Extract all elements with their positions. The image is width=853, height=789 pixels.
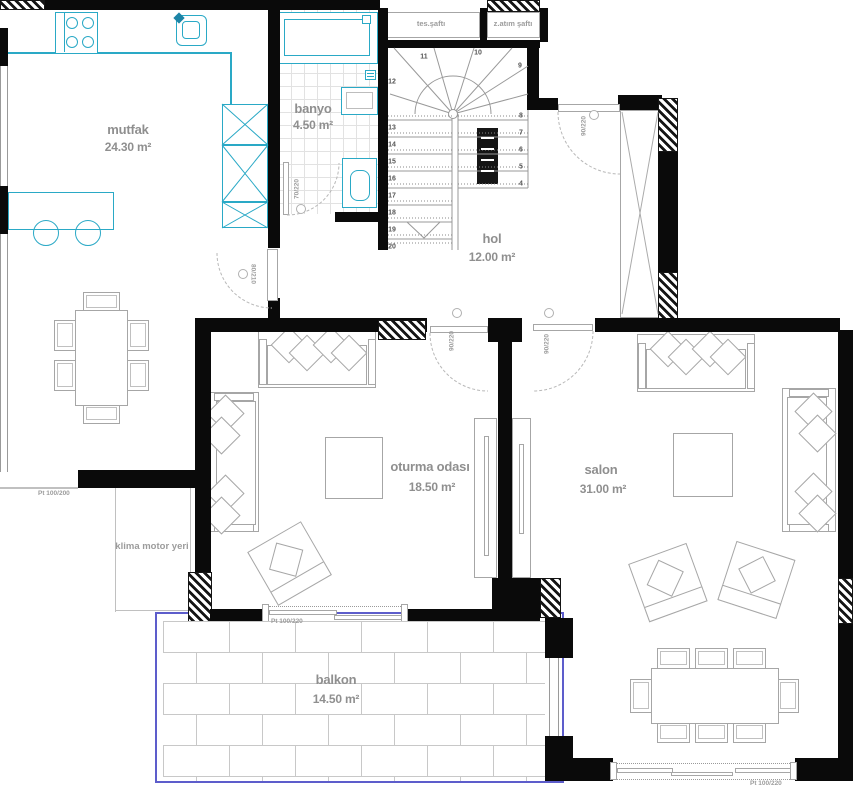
step-number: 12	[388, 79, 396, 86]
floor-plan: mutfak 24.30 m² banyo 4.50 m² hol 12.00 …	[0, 0, 853, 789]
kitchen-door-arc	[217, 253, 272, 308]
room-area-balkon: 14.50 m²	[313, 692, 359, 706]
step-number: 13	[388, 125, 396, 132]
step-number: 4	[519, 181, 523, 188]
door-dim-oturma: 90/220	[449, 331, 456, 351]
klima-label: klima motor yeri	[115, 541, 188, 552]
room-area-salon: 31.00 m²	[580, 482, 626, 496]
door-dim-salon: 90/220	[544, 334, 551, 354]
entry-door-arc	[558, 112, 620, 174]
door-tag-salon-bottom: Pt 100/220	[750, 780, 782, 787]
step-number: 17	[388, 193, 396, 200]
room-area-mutfak: 24.30 m²	[105, 140, 151, 154]
step-number: 19	[388, 227, 396, 234]
door-tag-circle	[452, 308, 462, 318]
step-number: 8	[519, 113, 523, 120]
shaft-label-zatim: z.atım şaftı	[494, 19, 533, 28]
door-dim-banyo: 70/220	[294, 179, 301, 199]
step-number: 15	[388, 159, 396, 166]
room-area-banyo: 4.50 m²	[293, 118, 333, 132]
door-tag-circle	[589, 110, 599, 120]
room-area-hol: 12.00 m²	[469, 250, 515, 264]
step-number: 7	[519, 130, 523, 137]
step-number: 10	[474, 50, 482, 57]
wardrobe-x	[622, 112, 658, 314]
stair-steps	[388, 48, 528, 250]
salon-door-arc	[533, 331, 593, 391]
room-label-hol: hol	[483, 231, 502, 246]
step-number: 20	[388, 244, 396, 251]
oturma-door-arc	[430, 333, 488, 391]
step-number: 14	[388, 142, 396, 149]
cabinet-x	[222, 104, 268, 228]
step-number: 18	[388, 210, 396, 217]
step-number: 9	[518, 63, 522, 70]
door-dim-mutfak: 80/210	[250, 264, 257, 284]
door-dim-entry: 90/220	[581, 116, 588, 136]
room-label-mutfak: mutfak	[107, 122, 148, 137]
door-tag-circle	[296, 204, 306, 214]
step-number: 5	[519, 164, 523, 171]
door-tag-circle	[238, 269, 248, 279]
room-label-salon: salon	[585, 462, 618, 477]
room-label-balkon: balkon	[316, 672, 357, 687]
step-number: 16	[388, 176, 396, 183]
step-number: 11	[420, 54, 427, 61]
step-number: 6	[519, 147, 523, 154]
room-label-oturma: oturma odası	[390, 459, 469, 474]
room-area-oturma: 18.50 m²	[409, 480, 455, 494]
door-tag-circle	[544, 308, 554, 318]
linework-overlay	[0, 0, 853, 789]
shaft-label-tes: tes.şaftı	[417, 19, 445, 28]
room-label-banyo: banyo	[294, 101, 331, 116]
door-tag-balcony: Pt 100/220	[271, 618, 303, 625]
window-tag-left: Pt 100/200	[38, 490, 70, 497]
